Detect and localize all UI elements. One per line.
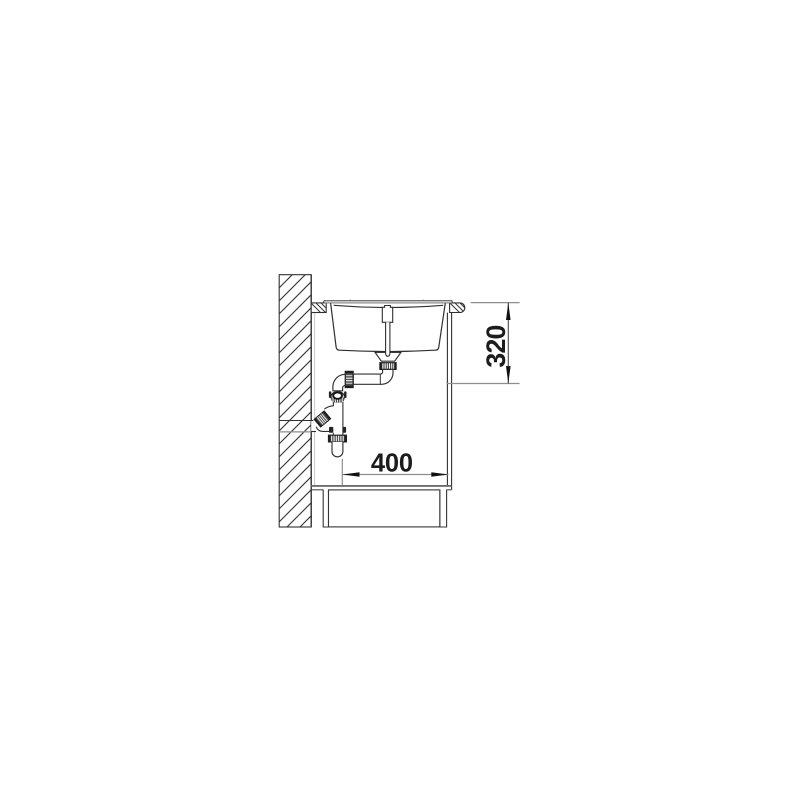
svg-text:320: 320 <box>481 325 511 367</box>
svg-text:400: 400 <box>371 450 413 478</box>
